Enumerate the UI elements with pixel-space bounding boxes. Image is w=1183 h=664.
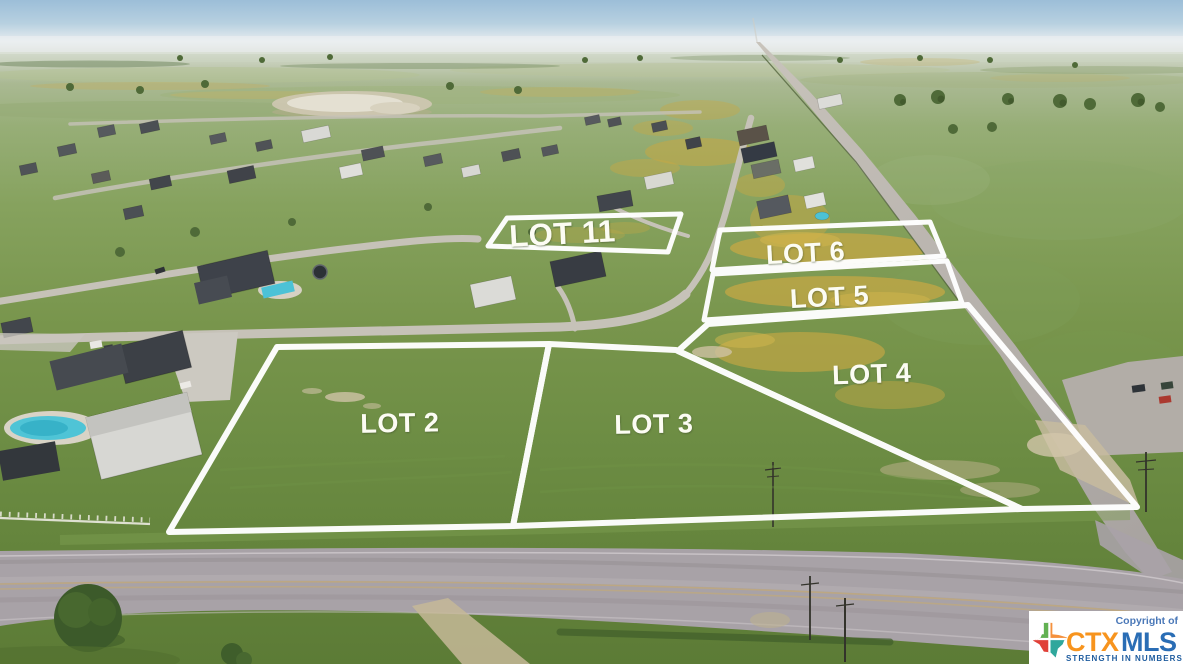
- aerial-lot-photo: LOT 11 LOT 6 LOT 5 LOT 4 LOT 2 LOT 3 Cop…: [0, 0, 1183, 664]
- lot-6-label: LOT 6: [765, 236, 845, 270]
- lot-4-label: LOT 4: [832, 358, 912, 391]
- wildflower-patch: [30, 82, 270, 90]
- trampoline: [313, 265, 327, 279]
- watermark-tagline: STRENGTH IN NUMBERS: [1066, 654, 1183, 663]
- lot-5-label: LOT 5: [789, 280, 869, 314]
- horizon-haze: [0, 36, 1183, 54]
- lot-3-label: LOT 3: [614, 408, 694, 439]
- lot-2-label: LOT 2: [360, 407, 440, 438]
- watermark: Copyright of CTX MLS STRENGTH IN NUMBERS: [1029, 611, 1183, 664]
- watermark-brand-ctx: CTX: [1066, 627, 1119, 657]
- pond: [272, 91, 432, 118]
- lot-11-label: LOT 11: [508, 213, 616, 254]
- pool: [815, 212, 829, 220]
- watermark-copyright: Copyright of: [1116, 615, 1179, 627]
- watermark-brand-mls: MLS: [1121, 627, 1177, 657]
